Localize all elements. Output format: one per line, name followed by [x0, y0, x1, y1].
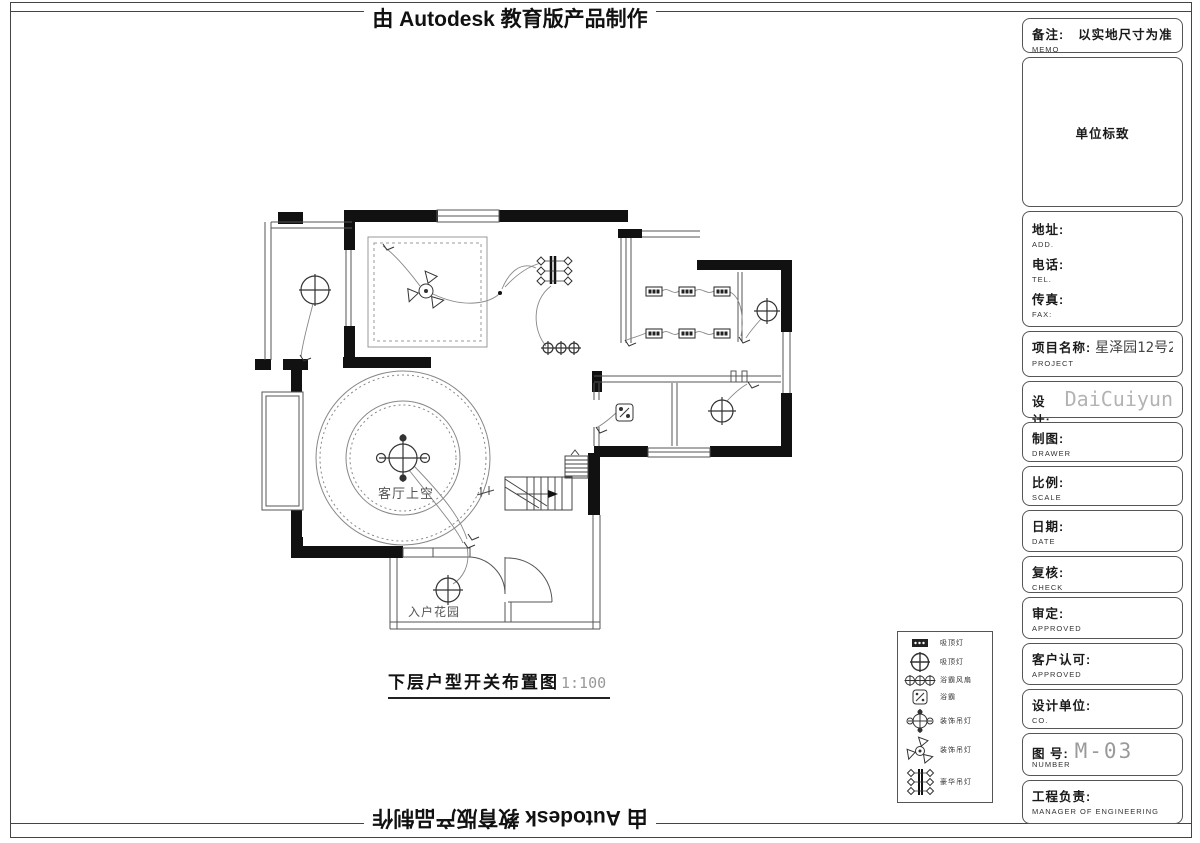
drawing-number-value: M-03 — [1075, 739, 1134, 763]
drawing-number-field: 图 号: M-03 NUMBER — [1022, 733, 1183, 776]
scale-field: 比例: SCALE — [1022, 466, 1183, 506]
ceiling-lamp — [299, 274, 331, 306]
designer-field: 设计: DaiCuiyun DESIGNER — [1022, 381, 1183, 418]
stairs — [477, 450, 588, 510]
chandelier-lamp — [377, 434, 430, 482]
drawer-field: 制图: DRAWER — [1022, 422, 1183, 462]
doors — [468, 557, 552, 602]
legend-label: 豪华吊灯 — [940, 777, 972, 787]
company-field: 设计单位: CO. — [1022, 689, 1183, 729]
legend-label: 装饰吊灯 — [940, 716, 972, 726]
scale-sublabel: SCALE — [1032, 493, 1173, 502]
legend-row: 浴霸风扇 — [900, 674, 990, 687]
client-approved-field: 客户认可: APPROVED — [1022, 643, 1183, 685]
address-label: 地址: — [1032, 219, 1173, 238]
drawer-sublabel: DRAWER — [1032, 449, 1173, 458]
legend-label: 装饰吊灯 — [940, 745, 972, 755]
bath-heater-icon — [905, 688, 935, 706]
project-label: 项目名称: — [1032, 337, 1091, 356]
company-sublabel: CO. — [1032, 716, 1173, 725]
memo-value: 以实地尺寸为准 — [1078, 24, 1173, 43]
contact-field: 地址: ADD. 电话: TEL. 传真: FAX: — [1022, 211, 1183, 327]
client-approved-label: 客户认可: — [1032, 649, 1173, 668]
track-lights — [646, 287, 730, 338]
drawing-title-text: 下层户型开关布置图 — [388, 673, 559, 692]
downlight-row-icon — [903, 674, 937, 687]
ceiling-lamp — [754, 298, 780, 324]
company-logo-box: 单位标致 — [1022, 57, 1183, 207]
legend-label: 吸顶灯 — [940, 657, 964, 667]
project-sublabel: PROJECT — [1032, 359, 1173, 368]
chandelier-icon — [905, 765, 935, 799]
tel-label: 电话: — [1032, 254, 1173, 273]
title-block: 备注: MEMO 以实地尺寸为准 单位标致 地址: ADD. 电话: TEL. … — [1022, 18, 1183, 824]
floor-plan: 客厅上空 入户花园 — [0, 0, 1200, 843]
check-label: 复核: — [1032, 562, 1173, 581]
legend-label: 吸顶灯 — [940, 638, 964, 648]
approved-label: 审定: — [1032, 603, 1173, 622]
legend-row: 吸顶灯 — [900, 651, 990, 673]
company-label: 设计单位: — [1032, 695, 1173, 714]
project-field: 项目名称: 星泽园12号2-303-- PROJECT — [1022, 331, 1183, 377]
project-value: 星泽园12号2-303-- — [1095, 337, 1173, 357]
ceiling-lamp-icon — [905, 651, 935, 673]
address-sublabel: ADD. — [1032, 240, 1173, 249]
date-sublabel: DATE — [1032, 537, 1173, 546]
legend-label: 浴霸 — [940, 692, 956, 702]
walls — [255, 210, 792, 558]
memo-sublabel: MEMO — [1032, 45, 1064, 54]
check-sublabel: CHECK — [1032, 583, 1173, 592]
legend-row: 装饰吊灯 — [900, 707, 990, 735]
legend-row: 豪华吊灯 — [900, 765, 990, 799]
multi-pendant-symbol — [537, 256, 572, 285]
thin-walls-windows — [262, 210, 790, 629]
date-field: 日期: DATE — [1022, 510, 1183, 552]
legend-row: 浴霸 — [900, 688, 990, 706]
bath-heater-symbol — [616, 404, 633, 421]
company-logo-text: 单位标致 — [1075, 123, 1129, 142]
drawer-label: 制图: — [1032, 428, 1173, 447]
scale-label: 比例: — [1032, 472, 1173, 491]
memo-label: 备注: — [1032, 24, 1064, 43]
legend-label: 浴霸风扇 — [940, 675, 972, 685]
ceiling-lamp — [708, 397, 736, 425]
approved-sublabel: APPROVED — [1032, 624, 1173, 633]
pendant-lamp-icon — [905, 707, 935, 735]
fax-sublabel: FAX: — [1032, 310, 1173, 319]
client-approved-sublabel: APPROVED — [1032, 670, 1173, 679]
legend-box: 吸顶灯 吸顶灯 浴霸风扇 浴霸 装饰吊灯 装饰吊灯 豪华吊灯 — [897, 631, 993, 803]
manager-sublabel: MANAGER OF ENGINEERING — [1032, 807, 1173, 816]
memo-field: 备注: MEMO 以实地尺寸为准 — [1022, 18, 1183, 53]
drawing-scale: 1:100 — [561, 674, 606, 692]
fan-lamp — [406, 271, 444, 309]
downlight-row — [541, 341, 581, 355]
track-light-icon — [905, 636, 935, 650]
manager-field: 工程负责: MANAGER OF ENGINEERING — [1022, 780, 1183, 824]
fax-label: 传真: — [1032, 289, 1173, 308]
living-void-label: 客厅上空 — [378, 486, 434, 502]
legend-row: 吸顶灯 — [900, 636, 990, 650]
date-label: 日期: — [1032, 516, 1173, 535]
approved-field: 审定: APPROVED — [1022, 597, 1183, 639]
legend-row: 装饰吊灯 — [900, 736, 990, 764]
drawing-title: 下层户型开关布置图1:100 — [388, 668, 610, 699]
fan-lamp-icon — [905, 736, 935, 764]
switch-wires — [301, 246, 761, 584]
check-field: 复核: CHECK — [1022, 556, 1183, 593]
tel-sublabel: TEL. — [1032, 275, 1173, 284]
manager-label: 工程负责: — [1032, 786, 1173, 805]
designer-value: DaiCuiyun — [1065, 387, 1173, 411]
entry-garden-label: 入户花园 — [408, 604, 460, 619]
